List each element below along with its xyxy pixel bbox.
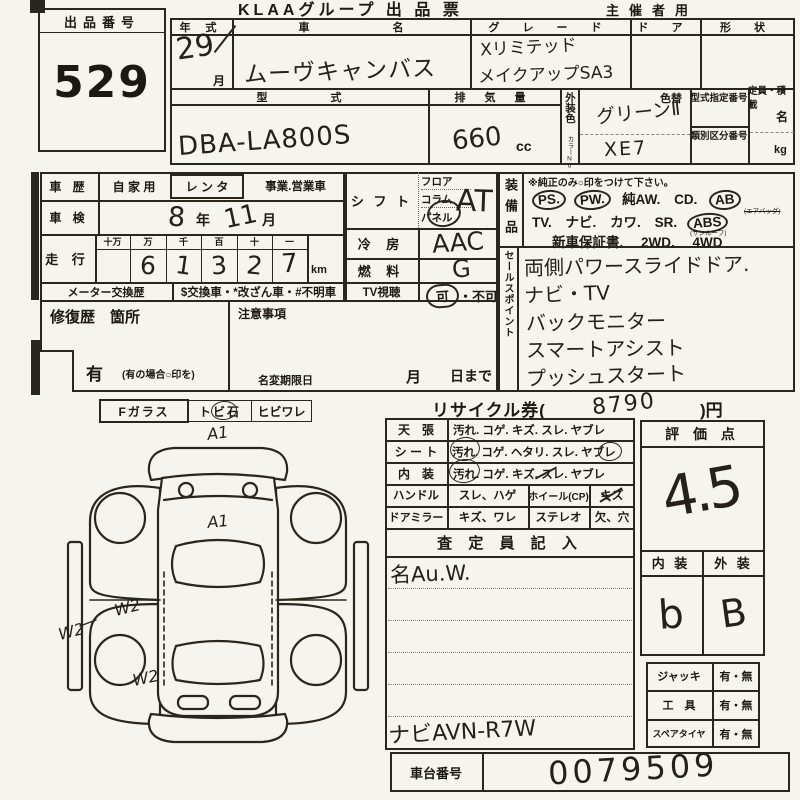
vehicle-name-value: ムーヴキャンバス — [243, 49, 436, 90]
exterior-grade-label: 外 装 — [702, 550, 765, 575]
repair-box-edge — [496, 300, 498, 392]
equip-cd: CD. — [674, 192, 697, 207]
equip-pw-circled: PW. — [573, 189, 611, 212]
opt: キズ. — [512, 425, 538, 437]
cond-handle-label: ハンドル — [385, 484, 447, 506]
equip-aw: 純AW. — [622, 192, 660, 207]
opt: ヘタリ. — [511, 447, 549, 459]
cond-stereo-options: 欠、穴 — [589, 506, 635, 528]
name-change-month: 月 — [406, 366, 421, 387]
cond-stereo-label: ステレオ — [528, 506, 589, 528]
car-damage-diagram: A1 A1 W2 W2 W2 — [52, 424, 386, 758]
repair-box-edge — [40, 350, 74, 352]
odometer-digit-label: 万 — [130, 235, 166, 248]
equip-ps-circled: PS. — [531, 189, 566, 211]
ac-label: 冷 房 — [345, 228, 418, 258]
year-month-printed: 月 — [213, 72, 225, 89]
inspection-year-value: 8 — [167, 201, 186, 233]
displacement-label: 排 気 量 — [428, 89, 560, 104]
cond-handle-options: スレ、ハゲ — [447, 484, 528, 506]
divider — [228, 300, 230, 392]
meter-history-label: メーター交換歴 — [40, 282, 172, 302]
equipment-row1: PS. PW. 純AW. CD. AB — [532, 188, 741, 210]
opt: コゲ. — [482, 469, 508, 481]
repair-box-edge — [72, 390, 498, 392]
odometer-digit-label: 十万 — [95, 235, 130, 248]
name-label: 車 名 — [232, 19, 470, 34]
exterior-grade-value: B — [697, 572, 770, 654]
equipment-label: 装備品 — [501, 178, 520, 241]
tv-label: TV視聴 — [345, 282, 418, 302]
evaluation-label: 評 価 点 — [640, 421, 765, 446]
cond-mirror-options: キズ、ワレ — [447, 506, 528, 528]
inspection-month-suffix: 月 — [262, 210, 276, 230]
divider — [482, 752, 484, 792]
memo-line — [388, 652, 632, 653]
odometer-digit: 6 — [129, 249, 167, 282]
memo-line — [388, 684, 632, 685]
shift-value: AT — [455, 183, 493, 219]
displacement-unit: cc — [516, 138, 532, 154]
rear-right-wheel — [291, 635, 341, 685]
inspection-year-suffix: 年 — [196, 210, 210, 230]
notes-label: 注意事項 — [238, 305, 286, 322]
spare-tire-yes-no: 有・無 — [712, 719, 760, 748]
grade-value-line2: メイクアップSA3 — [478, 58, 614, 88]
damage-mark-w2-door: W2 — [112, 595, 142, 620]
divider — [750, 132, 794, 133]
interior-grade-value: b — [637, 576, 704, 654]
equipment-note: ※純正のみ○印をつけて下さい。 — [528, 174, 674, 189]
inspector-memo-top: 名Au.W. — [390, 557, 471, 590]
tv-ok-circled: 可 — [425, 283, 460, 309]
cond-mirror-label: ドアミラー — [385, 506, 447, 528]
odometer-digit: 7 — [271, 247, 308, 280]
odometer-digit-label: 千 — [166, 235, 201, 248]
opt: ヤブレ — [571, 469, 606, 481]
shape-label: 形 状 — [700, 19, 795, 34]
opt: コゲ. — [481, 447, 507, 459]
lot-number-box: 出品番号 529 — [38, 8, 166, 152]
scan-artifact — [31, 172, 39, 300]
divider — [418, 172, 419, 228]
year-value: 29 — [174, 28, 217, 68]
history-business: 事業.営業車 — [246, 172, 345, 200]
mileage-label: 走 行 — [40, 234, 95, 282]
equip-ab-circled: AB — [708, 189, 741, 211]
meter-history-note: $交換車・*改ざん車・#不明車 — [172, 282, 345, 302]
type-number-label: 型式指定番号 — [690, 90, 748, 103]
fuel-label: 燃 料 — [345, 258, 418, 282]
sales-point-line: ナビ・TV — [524, 277, 611, 309]
scan-artifact — [31, 340, 40, 395]
sales-point-line: 両側パワースライドドア. — [524, 248, 750, 281]
auction-sheet: KLAAグループ 出 品 票 主催者用 出品番号 529 年 式 車 名 グ レ… — [0, 0, 800, 800]
tools-yes-no: 有・無 — [712, 690, 760, 719]
recycle-value: 8790 — [591, 389, 657, 421]
right-sill — [354, 542, 368, 690]
inspection-label: 車 検 — [40, 200, 98, 234]
recycle-suffix: )円 — [700, 396, 723, 421]
color-code-value: XE7 — [603, 137, 647, 161]
odometer-km-unit: km — [311, 264, 327, 276]
sales-points-label: セールスポイント — [500, 250, 515, 338]
lot-number-label: 出品番号 — [40, 10, 164, 33]
left-sill — [68, 542, 82, 690]
repair-box-edge — [72, 350, 74, 392]
name-change-day: 日まで — [450, 366, 492, 386]
displacement-value: 660 — [451, 121, 504, 156]
capacity-persons-unit: 名 — [776, 108, 788, 125]
tv-options: 可・不可 — [426, 284, 498, 308]
spare-tire-label: スペアタイヤ — [646, 719, 712, 748]
opt: コゲ. — [482, 425, 508, 437]
chassis-number-label: 車台番号 — [390, 752, 482, 792]
color-no-label: カラーNo. — [564, 136, 574, 177]
odometer-digit-label: 十 — [237, 235, 272, 248]
cond-wheel-label: ホイール(CP) — [528, 484, 589, 506]
sales-point-line: プッシュスタート — [526, 357, 687, 392]
history-rental: レ ン タ — [170, 174, 244, 199]
shift-label: シ フ ト — [345, 172, 418, 228]
equip-leather: カワ. — [610, 215, 641, 230]
tools-label: 工 具 — [646, 690, 712, 719]
cond-ceiling-label: 天 張 — [385, 418, 447, 440]
interior-grade-label: 内 装 — [640, 550, 702, 575]
exterior-color-label: 外装色 — [562, 92, 578, 124]
equip-sr: SR. — [655, 215, 678, 230]
rear-bumper — [149, 714, 287, 742]
sheet-title: KLAAグループ 出 品 票 — [238, 0, 463, 20]
lot-number-value: 529 — [40, 42, 164, 122]
odometer-digit: 1 — [164, 248, 203, 284]
cond-seat-label: シ ー ト — [385, 440, 447, 462]
capacity-label: 定員・積載 — [748, 90, 794, 103]
opt: スレ. — [552, 447, 578, 459]
fuel-value: G — [451, 254, 472, 284]
repair-box-edge — [40, 300, 498, 302]
door-label: ド ア — [630, 19, 700, 34]
evaluation-score: 4.5 — [657, 454, 744, 531]
divider — [640, 446, 765, 448]
jack-yes-no: 有・無 — [712, 662, 760, 690]
divider — [580, 134, 690, 135]
odometer-digit-label: 一 — [272, 235, 307, 248]
divider — [578, 88, 580, 165]
cond-ceiling-options: 汚れ. コゲ. キズ. スレ. ヤブレ — [453, 422, 605, 438]
odometer-digit-label: 百 — [201, 235, 237, 248]
divider — [418, 228, 420, 302]
grade-value-line1: Xリミテッド — [479, 30, 577, 60]
organizer-label: 主催者用 — [606, 0, 698, 19]
damage-mark-w2-rear: W2 — [131, 666, 160, 690]
cond-interior-label: 内 装 — [385, 462, 447, 484]
glass-label: Fガラス — [99, 399, 189, 423]
opt: 汚れ. — [453, 425, 479, 437]
equip-navi: ナビ. — [566, 215, 597, 230]
damage-mark-hood: A1 — [205, 511, 229, 532]
history-private: 自 家 用 — [98, 172, 170, 200]
class-number-label: 類別区分番号 — [690, 128, 748, 141]
glass-option-crack: ヒビワレ — [251, 400, 312, 422]
capacity-weight-unit: kg — [774, 144, 787, 156]
jack-label: ジャッキ — [646, 662, 712, 690]
repair-has-label: 有 — [86, 360, 103, 385]
repair-history-label: 修復歴 箇所 — [50, 306, 140, 327]
opt: ヤブレ — [571, 425, 606, 437]
opt: スレ. — [541, 469, 567, 481]
divider — [522, 172, 524, 248]
odometer-digit: 3 — [200, 249, 238, 282]
repair-has-note: (有の場合○印を) — [122, 366, 195, 381]
front-left-wheel — [95, 493, 145, 543]
odometer-digit: 2 — [235, 248, 273, 282]
opt: スレ. — [541, 425, 567, 437]
equip-ab-sublabel: (エアバッグ) — [744, 205, 781, 215]
front-right-wheel — [291, 493, 341, 543]
equip-tv: TV. — [532, 215, 552, 230]
opt: キズ. — [512, 469, 538, 481]
history-label: 車 歴 — [40, 172, 98, 200]
divider — [517, 246, 519, 392]
repair-box-edge — [40, 300, 42, 352]
ac-value: AAC — [431, 226, 485, 259]
memo-line — [388, 620, 632, 621]
inspector-entry-header: 査 定 員 記 入 — [385, 528, 635, 556]
model-label: 型 式 — [170, 89, 428, 104]
damage-mark-front: A1 — [205, 424, 230, 444]
name-change-label: 名変期限日 — [258, 372, 313, 388]
